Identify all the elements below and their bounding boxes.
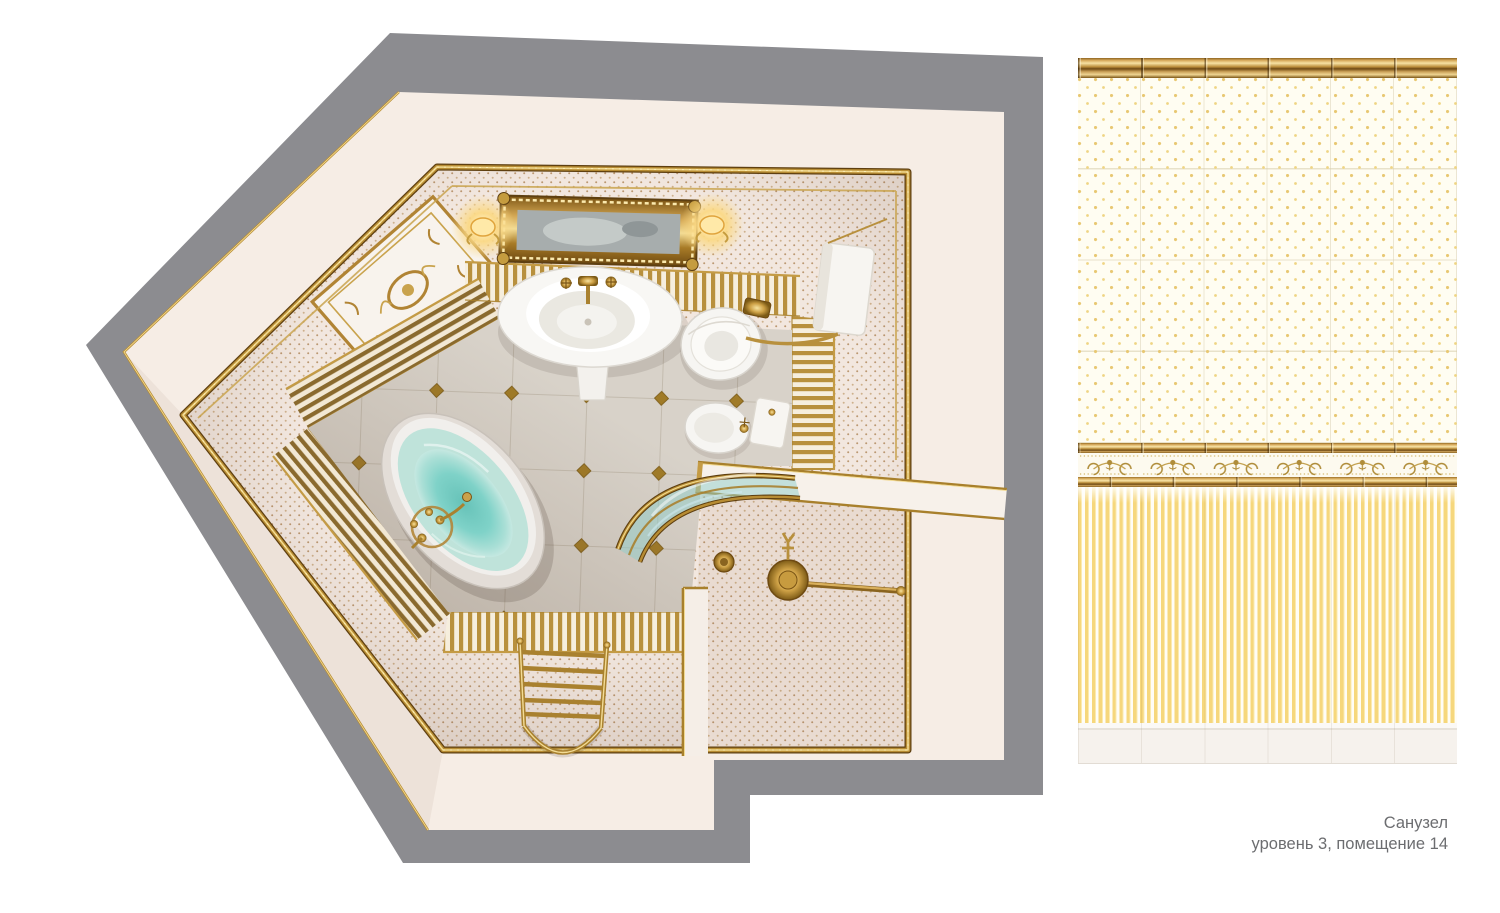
tile-ornament-frieze <box>1078 453 1457 477</box>
room-location: уровень 3, помещение 14 <box>1252 834 1448 855</box>
wall-cistern <box>813 242 875 336</box>
sconce-right <box>680 193 744 257</box>
title-block: Санузел уровень 3, помещение 14 <box>1252 813 1448 855</box>
tile-gold-molding-top <box>1078 58 1457 78</box>
tile-panel-sample <box>1078 58 1457 764</box>
floor-drain <box>714 552 734 572</box>
tile-dotted-field <box>1078 78 1457 443</box>
partition-wall <box>683 588 708 756</box>
room-name: Санузел <box>1252 813 1448 834</box>
bathroom-plan-render <box>0 0 1060 913</box>
tile-baseboard <box>1078 723 1457 764</box>
frieze-molding-top <box>1078 443 1457 453</box>
design-board: Санузел уровень 3, помещение 14 <box>0 0 1500 913</box>
sconce-left <box>451 195 515 259</box>
bidet-side-unit <box>749 397 790 448</box>
tile-striped-field <box>1078 487 1457 723</box>
frieze-molding-bottom <box>1078 477 1457 487</box>
ornate-wall-mirror <box>496 192 701 270</box>
